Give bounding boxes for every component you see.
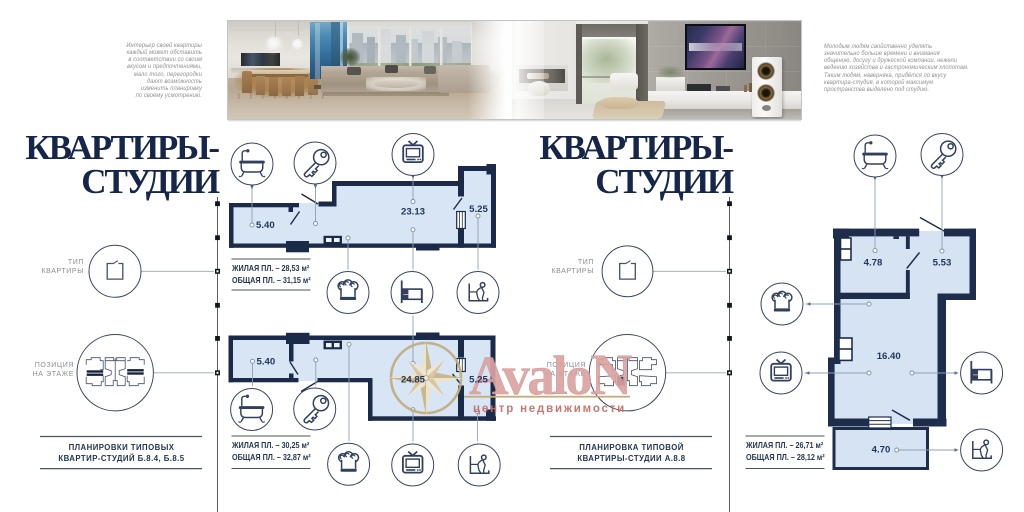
svg-text:5.40: 5.40 [256,220,275,231]
svg-text:23.13: 23.13 [401,207,425,218]
svg-text:5.40: 5.40 [257,357,276,368]
svg-text:5.53: 5.53 [933,258,952,269]
svg-text:5.25: 5.25 [469,204,488,215]
svg-text:5.25: 5.25 [469,375,488,386]
svg-text:16.40: 16.40 [877,351,901,362]
svg-text:24.85: 24.85 [401,375,426,386]
svg-text:центр недвижимости: центр недвижимости [473,403,626,415]
svg-text:4.70: 4.70 [872,445,891,456]
svg-text:4.78: 4.78 [864,258,883,269]
